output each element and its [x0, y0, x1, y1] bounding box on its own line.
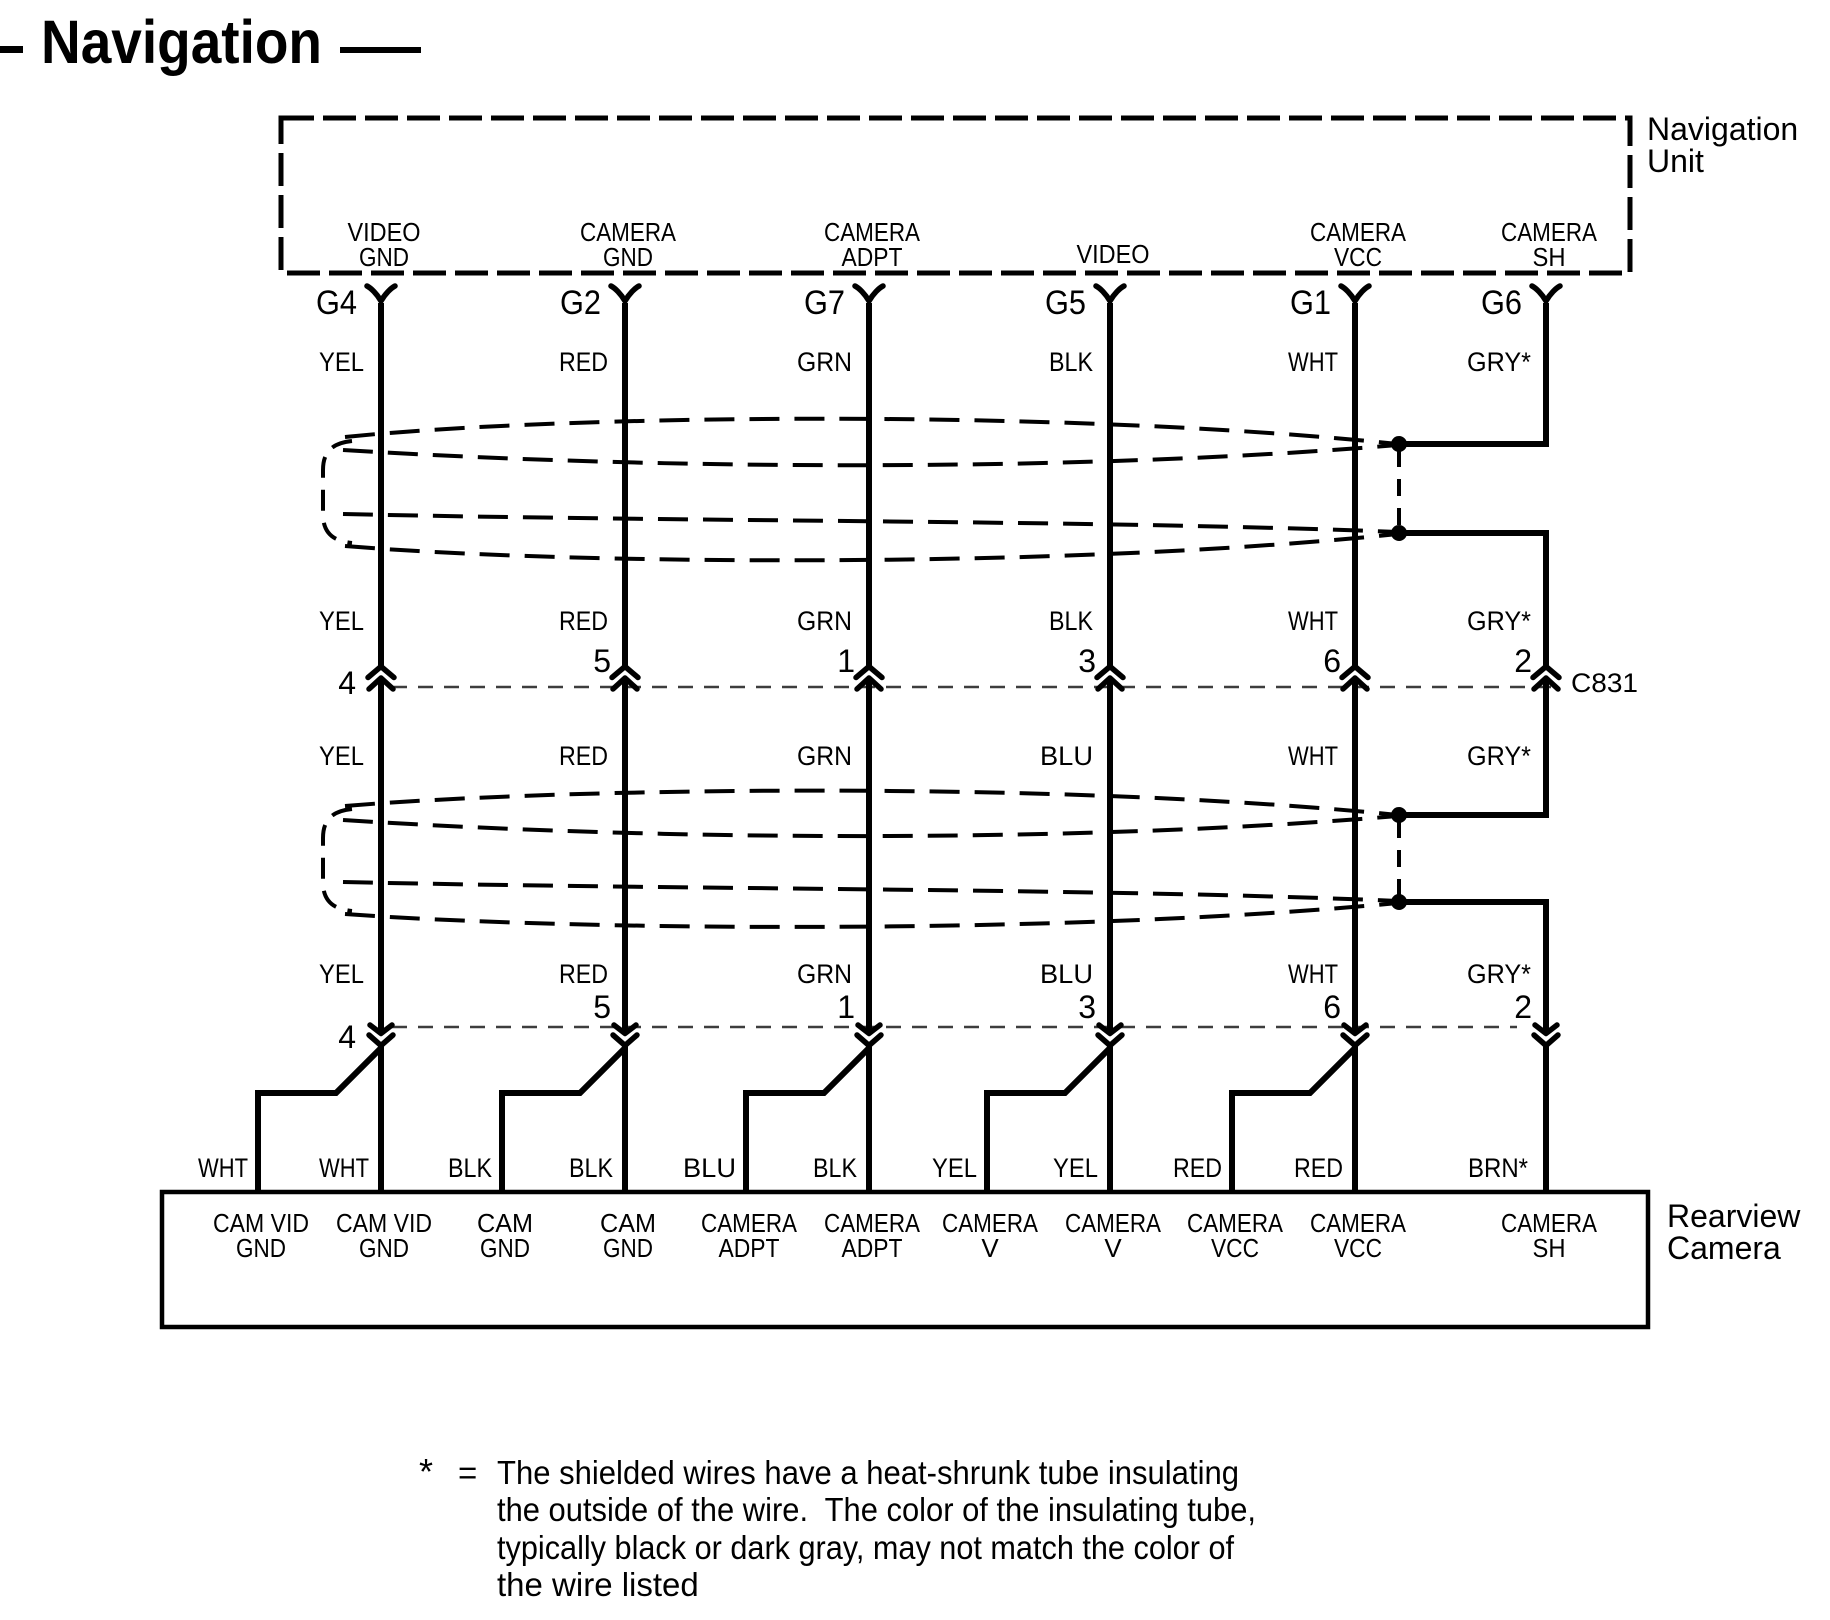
svg-text:YEL: YEL — [319, 959, 364, 989]
svg-text:Camera: Camera — [1667, 1230, 1781, 1266]
svg-text:GRN: GRN — [797, 741, 852, 771]
svg-text:RED: RED — [559, 347, 608, 377]
svg-text:RED: RED — [1294, 1153, 1343, 1183]
svg-text:WHT: WHT — [198, 1153, 248, 1183]
svg-text:GND: GND — [480, 1233, 530, 1263]
svg-text:G5: G5 — [1045, 284, 1086, 322]
svg-text:VCC: VCC — [1334, 1233, 1382, 1263]
svg-text:YEL: YEL — [319, 347, 364, 377]
svg-text:3: 3 — [1078, 643, 1096, 679]
svg-text:BLU: BLU — [683, 1153, 736, 1183]
svg-text:WHT: WHT — [1288, 959, 1338, 989]
svg-text:GND: GND — [359, 1233, 409, 1263]
svg-text:1: 1 — [837, 643, 855, 679]
svg-text:GRN: GRN — [797, 959, 852, 989]
svg-text:GRY*: GRY* — [1467, 959, 1531, 989]
svg-text:GND: GND — [236, 1233, 286, 1263]
svg-text:WHT: WHT — [1288, 741, 1338, 771]
svg-text:GRY*: GRY* — [1467, 347, 1531, 377]
svg-text:VCC: VCC — [1334, 242, 1382, 272]
svg-text:*: * — [419, 1451, 433, 1492]
svg-text:RED: RED — [559, 606, 608, 636]
svg-text:BRN*: BRN* — [1468, 1153, 1528, 1183]
svg-text:RED: RED — [559, 741, 608, 771]
svg-text:VCC: VCC — [1211, 1233, 1259, 1263]
svg-text:GND: GND — [603, 242, 653, 272]
svg-text:SH: SH — [1533, 242, 1566, 272]
svg-text:4: 4 — [338, 665, 356, 701]
svg-text:YEL: YEL — [932, 1153, 977, 1183]
svg-text:BLK: BLK — [448, 1153, 492, 1183]
svg-text:6: 6 — [1323, 643, 1341, 679]
svg-text:ADPT: ADPT — [842, 242, 903, 272]
svg-text:BLK: BLK — [813, 1153, 857, 1183]
svg-text:GRN: GRN — [797, 347, 852, 377]
svg-text:BLK: BLK — [569, 1153, 613, 1183]
svg-text:RED: RED — [559, 959, 608, 989]
svg-text:2: 2 — [1514, 989, 1532, 1025]
svg-text:G2: G2 — [560, 284, 601, 322]
svg-text:5: 5 — [593, 989, 611, 1025]
svg-text:G7: G7 — [804, 284, 845, 322]
svg-text:4: 4 — [338, 1019, 356, 1055]
svg-text:GRY*: GRY* — [1467, 606, 1531, 636]
svg-text:6: 6 — [1323, 989, 1341, 1025]
svg-text:5: 5 — [593, 643, 611, 679]
svg-text:WHT: WHT — [319, 1153, 369, 1183]
svg-text:the outside of the wire. The: the outside of the wire. The color of th… — [497, 1491, 1256, 1528]
svg-text:=: = — [458, 1454, 477, 1491]
svg-text:ADPT: ADPT — [842, 1233, 903, 1263]
svg-text:GND: GND — [603, 1233, 653, 1263]
svg-text:G1: G1 — [1290, 284, 1331, 322]
svg-text:G4: G4 — [316, 284, 357, 322]
svg-text:VIDEO: VIDEO — [1077, 239, 1150, 269]
svg-text:G6: G6 — [1481, 284, 1522, 322]
svg-text:Navigation: Navigation — [1647, 111, 1798, 147]
svg-text:WHT: WHT — [1288, 347, 1338, 377]
svg-text:typically black or dark gray,: typically black or dark gray, may not ma… — [497, 1529, 1235, 1566]
svg-text:GRY*: GRY* — [1467, 741, 1531, 771]
svg-text:The shielded wires have a heat: The shielded wires have a heat-shrunk tu… — [497, 1454, 1239, 1491]
svg-text:BLU: BLU — [1040, 959, 1093, 989]
svg-text:the wire listed: the wire listed — [497, 1566, 699, 1603]
svg-text:3: 3 — [1078, 989, 1096, 1025]
svg-text:BLK: BLK — [1049, 347, 1093, 377]
svg-text:SH: SH — [1533, 1233, 1566, 1263]
svg-text:2: 2 — [1514, 643, 1532, 679]
svg-text:YEL: YEL — [319, 741, 364, 771]
svg-text:YEL: YEL — [319, 606, 364, 636]
svg-text:V: V — [1104, 1233, 1122, 1263]
svg-text:GRN: GRN — [797, 606, 852, 636]
svg-text:Navigation: Navigation — [41, 8, 322, 76]
svg-text:1: 1 — [837, 989, 855, 1025]
svg-text:C831: C831 — [1571, 668, 1638, 698]
svg-text:RED: RED — [1173, 1153, 1222, 1183]
svg-text:ADPT: ADPT — [719, 1233, 780, 1263]
svg-text:GND: GND — [359, 242, 409, 272]
svg-text:V: V — [981, 1233, 999, 1263]
svg-text:Rearview: Rearview — [1667, 1198, 1801, 1234]
svg-text:WHT: WHT — [1288, 606, 1338, 636]
svg-text:BLU: BLU — [1040, 741, 1093, 771]
svg-text:BLK: BLK — [1049, 606, 1093, 636]
svg-text:YEL: YEL — [1053, 1153, 1098, 1183]
svg-text:Unit: Unit — [1647, 143, 1704, 179]
